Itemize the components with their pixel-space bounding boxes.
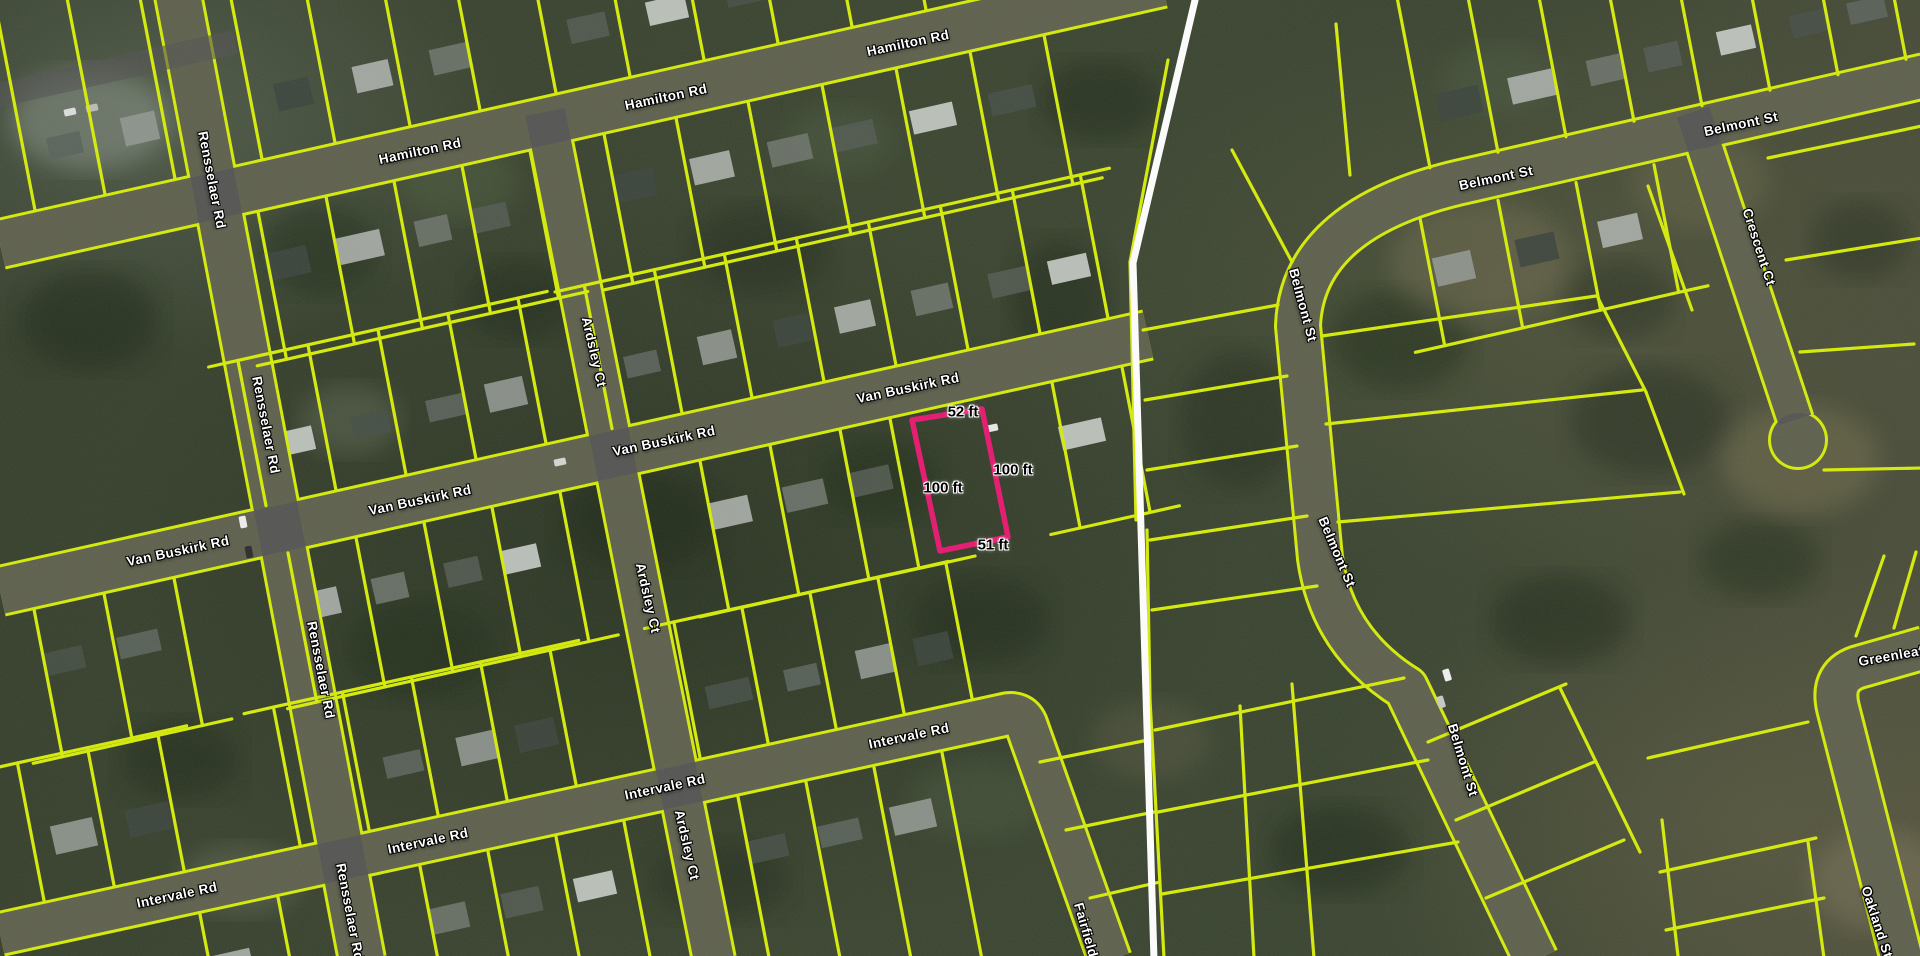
satellite-noise-overlay — [0, 0, 1920, 956]
map-canvas[interactable]: Hamilton RdHamilton RdHamilton RdVan Bus… — [0, 0, 1920, 956]
map-graphics-layer — [0, 0, 1920, 956]
